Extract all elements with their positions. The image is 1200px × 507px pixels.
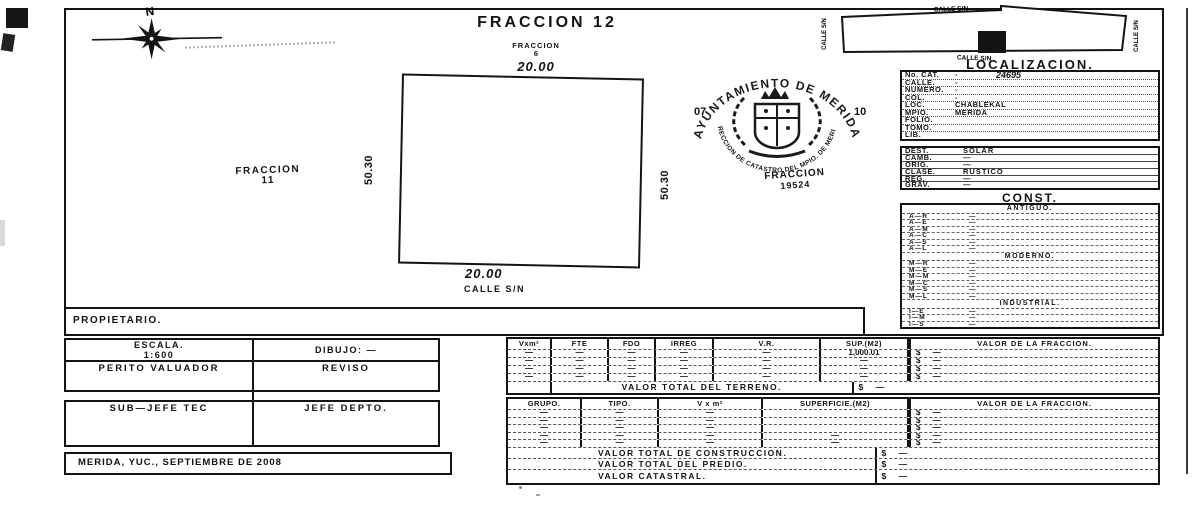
seal-left-number: 07: [694, 106, 706, 118]
table-row: — — — $ —: [508, 410, 1158, 418]
south-street-label: CALLE S/N: [464, 284, 525, 294]
scan-artifact: [519, 486, 522, 489]
cell: [508, 382, 552, 393]
cell: —: [659, 410, 763, 417]
row-label: GRAV.: [902, 182, 949, 188]
table-row: — — — — $ —: [508, 433, 1158, 441]
row-label: M—L: [902, 294, 951, 300]
row-value: —: [969, 220, 976, 226]
col-header: Vxm²: [508, 339, 552, 349]
table-row: COL.-: [902, 95, 1158, 103]
valor-cell: $ —: [877, 459, 1159, 469]
table-row: I—S—: [902, 322, 1158, 328]
scan-artifact: [1186, 8, 1188, 474]
minimap-subject-parcel: [978, 31, 1006, 53]
cell: —: [656, 366, 714, 373]
col-header: IRREG: [656, 339, 714, 349]
localizacion-table: No. CAT.-24695 CALLE.- NUMERO.- COL.- LO…: [900, 70, 1160, 141]
cell: [763, 418, 909, 425]
subjefe-label: SUB—JEFE TEC: [66, 402, 252, 416]
cell: —: [552, 366, 609, 373]
compass-rose-icon: N: [92, 4, 222, 68]
scan-artifact: [536, 494, 540, 496]
cell: —: [821, 358, 909, 365]
cell: —: [763, 440, 909, 447]
valor-cell: $ —: [854, 382, 1159, 393]
row-value: —: [969, 315, 976, 321]
valor-cell: $ —: [877, 448, 1159, 458]
perito-label: PERITO VALUADOR: [66, 362, 252, 376]
cell: —: [659, 433, 763, 440]
table-row: — — — — — — $ —: [508, 366, 1158, 374]
valor-cell: $ —: [909, 366, 1158, 373]
west-neighbor-label: FRACCION 11: [218, 164, 319, 187]
row-value: —: [969, 274, 976, 280]
dibujo-label: DIBUJO: —: [254, 340, 438, 360]
row-label: A—C: [902, 233, 951, 239]
cell: —: [508, 418, 582, 425]
catastral-number: 24695: [996, 72, 1021, 79]
cell: —: [508, 433, 582, 440]
cell: —: [582, 433, 659, 440]
predio-total-label: VALOR TOTAL DEL PREDIO.: [508, 459, 877, 469]
cadastral-sheet: N FRACCION 12 FRACCION 6 20.00 50.30 50.…: [0, 0, 1200, 507]
row-value: —: [963, 182, 972, 188]
north-neighbor-number: 6: [476, 50, 596, 58]
scan-artifact: [0, 220, 5, 246]
table-total-row: VALOR TOTAL DEL PREDIO. $ —: [508, 459, 1158, 470]
section-header: INDUSTRIAL.: [902, 300, 1158, 309]
col-header: FDO: [609, 339, 656, 349]
cell: [763, 425, 909, 432]
col-header: GRUPO.: [508, 399, 582, 409]
minimap-street-left-label: CALLE S/N: [822, 18, 828, 50]
terreno-total-label: VALOR TOTAL DEL TERRENO.: [552, 382, 854, 393]
valor-cell: $ —: [909, 374, 1158, 381]
cell: —: [508, 440, 582, 447]
cell: —: [609, 358, 656, 365]
cell: —: [582, 418, 659, 425]
escala-label: ESCALA.: [66, 340, 252, 350]
destino-table: DEST.SOLAR CAMB.— ORIG.— CLASE.RUSTICO R…: [900, 146, 1160, 190]
row-label: LIB.: [902, 132, 955, 139]
row-label: M—M: [902, 274, 951, 280]
valor-cell: $ —: [909, 425, 1158, 432]
table-row: — — — — — — $ —: [508, 374, 1158, 382]
row-label: I—S: [902, 322, 951, 328]
row-value: —: [969, 322, 976, 328]
row-value: —: [969, 287, 976, 293]
cell: —: [582, 425, 659, 432]
escala-box: ESCALA. 1:600 DIBUJO: — PERITO VALUADOR …: [64, 338, 440, 392]
cell: —: [508, 366, 552, 373]
table-row: — — — — $ —: [508, 440, 1158, 448]
row-label: M—S: [902, 287, 951, 293]
cell: —: [552, 374, 609, 381]
cell: —: [714, 374, 821, 381]
parcel-outline: [398, 73, 644, 268]
table-row: — — — — — — $ —: [508, 358, 1158, 366]
construccion-valuation-table: GRUPO. TIPO. V x m² SUPERFICIE.(M2) VALO…: [506, 397, 1160, 485]
cell: —: [508, 374, 552, 381]
cell: —: [763, 433, 909, 440]
valor-cell: $ —: [909, 440, 1158, 447]
east-dimension: 50.30: [659, 163, 671, 207]
table-row: FOLIO.: [902, 117, 1158, 125]
minimap-street-top-label: CALLE S/N: [934, 5, 969, 13]
table-row: CLASE.RUSTICO: [902, 169, 1158, 176]
page-title: FRACCION 12: [427, 14, 667, 32]
north-dimension: 20.00: [476, 59, 596, 74]
table-row: — — — $ —: [508, 418, 1158, 426]
valor-header: VALOR DE LA FRACCION.: [909, 399, 1158, 409]
col-header: SUP.(M2): [821, 339, 909, 349]
row-label: A—E: [902, 220, 951, 226]
reviso-label: REVISO: [254, 362, 438, 376]
cell: —: [821, 366, 909, 373]
row-value: —: [969, 261, 976, 267]
table-total-row: VALOR TOTAL DEL TERRENO. $ —: [508, 382, 1158, 393]
valor-catastral-label: VALOR CATASTRAL.: [508, 470, 877, 483]
cell: —: [609, 366, 656, 373]
escala-value: 1:600: [66, 350, 252, 360]
row-label: M—R: [902, 261, 951, 267]
table-row: GRAV.—: [902, 182, 1158, 188]
cell: —: [552, 358, 609, 365]
cell: —: [714, 358, 821, 365]
cell: —: [656, 374, 714, 381]
valor-cell: $ —: [877, 470, 1159, 483]
table-row: MPIO.MERIDA: [902, 110, 1158, 118]
date-bar: MERIDA, YUC., SEPTIEMBRE DE 2008: [64, 452, 452, 475]
compass-north-label: N: [145, 4, 155, 19]
cell: [763, 410, 909, 417]
superficie-value: 1,000.01: [821, 350, 909, 357]
section-header: ANTIGUO.: [902, 205, 1158, 214]
table-header-row: GRUPO. TIPO. V x m² SUPERFICIE.(M2) VALO…: [508, 399, 1158, 410]
seal-right-number: 10: [854, 106, 866, 118]
table-row: No. CAT.-24695: [902, 72, 1158, 80]
cell: —: [656, 358, 714, 365]
valor-cell: $ —: [909, 358, 1158, 365]
terreno-valuation-table: Vxm² FTE FDO IRREG V.R. SUP.(M2) VALOR D…: [506, 337, 1160, 395]
cell: —: [659, 425, 763, 432]
cell: —: [659, 418, 763, 425]
firmas-box: SUB—JEFE TEC JEFE DEPTO.: [64, 400, 440, 447]
west-dimension: 50.30: [363, 148, 375, 192]
row-value: MERIDA: [955, 110, 988, 117]
table-row: REG.—: [902, 176, 1158, 183]
cell: —: [609, 374, 656, 381]
location-minimap: CALLE S/N CALLE S/N CALLE S/N CALLE S/N: [816, 2, 1188, 64]
table-header-row: Vxm² FTE FDO IRREG V.R. SUP.(M2) VALOR D…: [508, 339, 1158, 350]
cell: —: [552, 350, 609, 357]
table-row: — — — — — 1,000.01 $ —: [508, 350, 1158, 358]
valor-cell: $ —: [909, 418, 1158, 425]
table-row: NUMERO.-: [902, 87, 1158, 95]
valor-header: VALOR DE LA FRACCION.: [909, 339, 1158, 349]
valor-cell: $ —: [909, 350, 1158, 357]
row-label: A—L: [902, 246, 951, 252]
scan-artifact: [6, 8, 28, 28]
row-value: —: [969, 246, 976, 252]
municipal-seal-icon: AYUNTAMIENTO DE MERIDA DIRECCION DE CATA…: [682, 66, 872, 206]
cell: —: [609, 350, 656, 357]
valor-cell: $ —: [909, 433, 1158, 440]
propietario-bar: PROPIETARIO.: [64, 307, 865, 336]
minimap-street-right-label: CALLE S/N: [1134, 20, 1140, 52]
cell: —: [714, 350, 821, 357]
valor-cell: $ —: [909, 410, 1158, 417]
col-header: V.R.: [714, 339, 821, 349]
table-row: LOC.CHABLEKAL: [902, 102, 1158, 110]
south-dimension: 20.00: [465, 266, 503, 281]
section-header: MODERNO.: [902, 253, 1158, 262]
table-row: CAMB.—: [902, 155, 1158, 162]
table-row: TOMO.: [902, 125, 1158, 133]
table-row: DEST.SOLAR: [902, 148, 1158, 155]
row-value: —: [969, 233, 976, 239]
cell: —: [582, 440, 659, 447]
cell: —: [582, 410, 659, 417]
cell: —: [508, 350, 552, 357]
table-total-row: VALOR TOTAL DE CONSTRUCCION. $ —: [508, 448, 1158, 459]
col-header: TIPO.: [582, 399, 659, 409]
cell: —: [659, 440, 763, 447]
cell: —: [508, 358, 552, 365]
construcciones-table: ANTIGUO. A—R— A—E— A—M— A—C— A—S— A—L— M…: [900, 203, 1160, 329]
table-row: ORIG.—: [902, 162, 1158, 169]
construccion-total-label: VALOR TOTAL DE CONSTRUCCION.: [508, 448, 877, 458]
cell: —: [508, 425, 582, 432]
col-header: FTE: [552, 339, 609, 349]
cell: —: [656, 350, 714, 357]
row-value: —: [969, 294, 976, 300]
table-row: — — — $ —: [508, 425, 1158, 433]
table-total-row: VALOR CATASTRAL. $ —: [508, 470, 1158, 483]
table-row: LIB.: [902, 132, 1158, 139]
row-label: I—M: [902, 315, 951, 321]
col-header: SUPERFICIE.(M2): [763, 399, 909, 409]
coat-of-arms-icon: [734, 87, 821, 157]
cell: —: [714, 366, 821, 373]
col-header: V x m²: [659, 399, 763, 409]
scan-artifact: [1, 33, 16, 52]
jefe-label: JEFE DEPTO.: [254, 402, 438, 416]
cell: —: [821, 374, 909, 381]
cell: —: [508, 410, 582, 417]
